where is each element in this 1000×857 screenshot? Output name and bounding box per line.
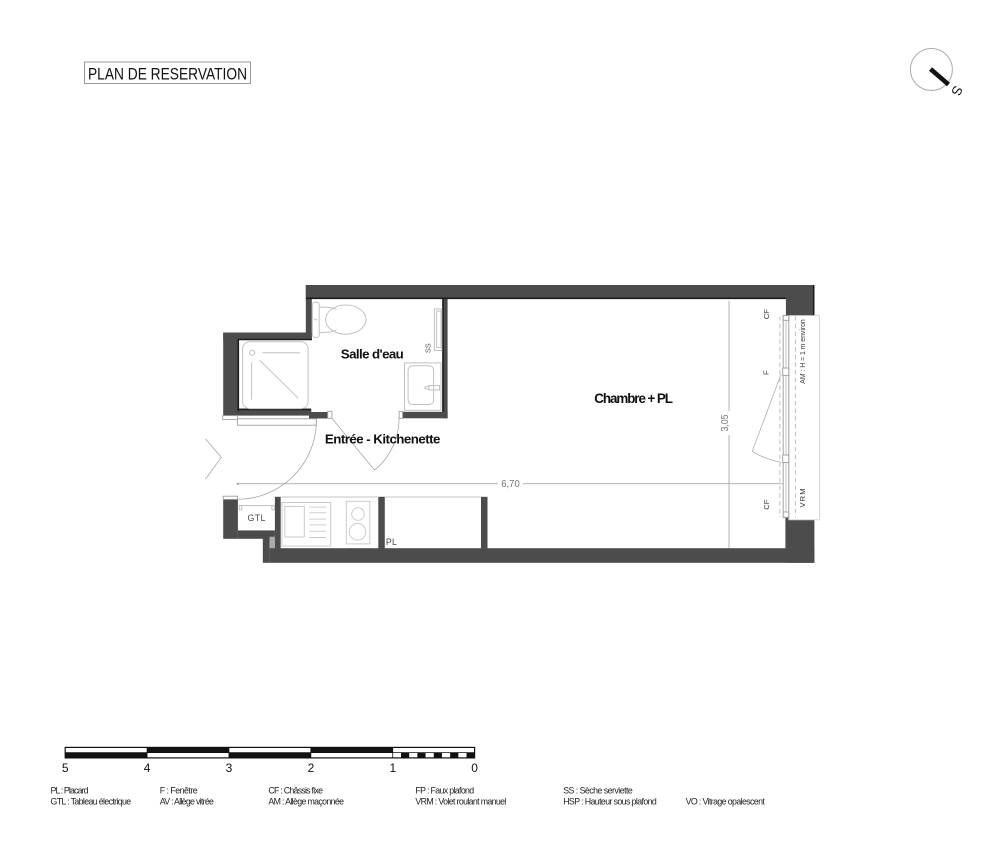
svg-text:Salle d'eau: Salle d'eau <box>341 347 404 362</box>
svg-text:GTL: GTL <box>248 513 266 523</box>
svg-text:S: S <box>948 83 965 98</box>
svg-text:4: 4 <box>144 761 151 775</box>
svg-text:VRM: VRM <box>798 489 807 508</box>
svg-text:6,70: 6,70 <box>501 479 520 490</box>
svg-text:HSP : Hauteur sous plafond: HSP : Hauteur sous plafond <box>563 797 657 807</box>
svg-text:3,05: 3,05 <box>720 414 731 431</box>
svg-text:Entrée - Kitchenette: Entrée - Kitchenette <box>325 432 441 447</box>
svg-text:2: 2 <box>308 761 315 775</box>
svg-text:VO : Vitrage opalescent: VO : Vitrage opalescent <box>686 797 766 807</box>
svg-text:PL : Placard: PL : Placard <box>51 785 89 795</box>
svg-text:CF: CF <box>762 309 771 319</box>
svg-text:SS: SS <box>424 343 433 353</box>
svg-text:GTL : Tableau électrique: GTL : Tableau électrique <box>51 797 132 807</box>
svg-text:PL: PL <box>386 537 397 547</box>
svg-text:CF: CF <box>762 499 771 509</box>
svg-text:AV : Allège vitrée: AV : Allège vitrée <box>160 797 214 807</box>
svg-text:Chambre + PL: Chambre + PL <box>594 391 673 406</box>
svg-text:3: 3 <box>226 761 233 775</box>
svg-text:SS : Sèche serviette: SS : Sèche serviette <box>563 785 633 795</box>
svg-text:0: 0 <box>471 761 478 775</box>
svg-text:F: F <box>762 370 771 375</box>
svg-text:AM : H = 1 m environ: AM : H = 1 m environ <box>798 319 807 384</box>
svg-text:F : Fenêtre: F : Fenêtre <box>160 785 198 795</box>
svg-text:AM : Allège maçonnée: AM : Allège maçonnée <box>268 797 344 807</box>
svg-text:1: 1 <box>390 761 397 775</box>
svg-text:PLAN DE RESERVATION: PLAN DE RESERVATION <box>88 66 247 84</box>
svg-text:CF : Châssis fixe: CF : Châssis fixe <box>268 785 323 795</box>
svg-text:VRM : Volet roulant manuel: VRM : Volet roulant manuel <box>415 797 506 807</box>
svg-text:FP : Faux plafond: FP : Faux plafond <box>415 785 474 795</box>
svg-text:5: 5 <box>62 761 69 775</box>
